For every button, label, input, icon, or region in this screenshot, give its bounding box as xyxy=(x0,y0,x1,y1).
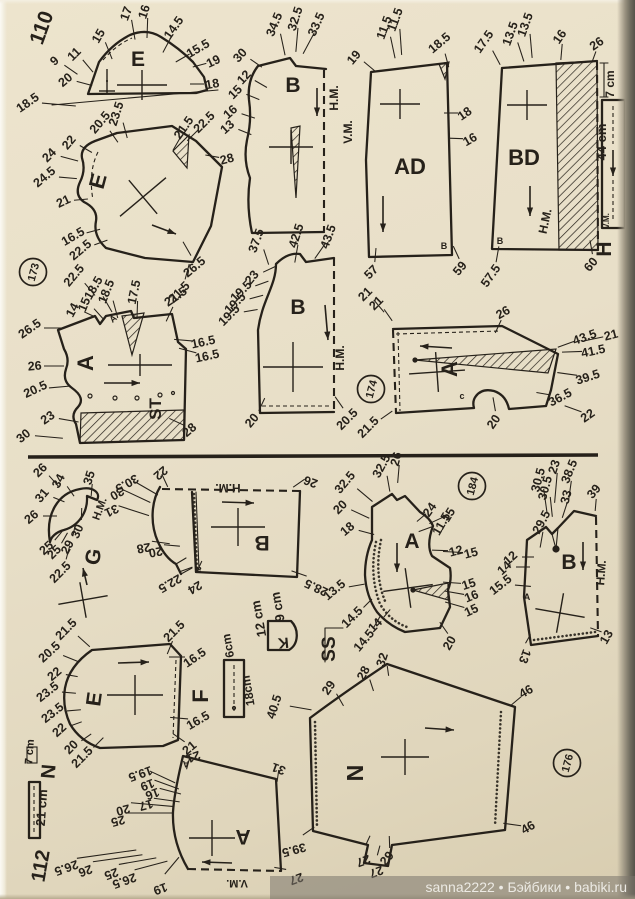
measurement-label: 30 xyxy=(68,522,86,540)
pattern-sheet-page: 110112EEASTBBAADBDHGBKFSSENABNAH.M.V.M.H… xyxy=(0,0,635,899)
measurement-label: 18 xyxy=(204,76,220,92)
measurement-label: 12 xyxy=(447,543,464,560)
measurement-label: 44 cm xyxy=(594,124,609,161)
measurement-label: 31 xyxy=(32,486,52,506)
measurement-label: A xyxy=(524,592,531,602)
measurement-label: 12 cm xyxy=(248,599,269,638)
measurement-label: 23 xyxy=(38,408,57,427)
measurement-label: V.M. xyxy=(226,877,248,889)
measurement-label: 22 xyxy=(578,406,597,425)
piece-letter-AD: AD xyxy=(394,154,426,179)
section-divider xyxy=(28,455,598,457)
arrow-head xyxy=(245,500,254,506)
measurement-label: 32.5 xyxy=(332,469,358,497)
leader-line xyxy=(515,585,531,586)
measurement-label: H.M. xyxy=(333,345,347,370)
measurement-label: 22.5 xyxy=(156,571,184,595)
piece-letter-B2: B xyxy=(290,296,305,319)
leader-line xyxy=(119,858,156,865)
measurement-label: 16 xyxy=(135,3,153,21)
stipple-B4 xyxy=(534,632,595,640)
piece-letter-K: K xyxy=(277,634,289,652)
leader-line xyxy=(351,510,369,518)
leader-line xyxy=(292,571,307,576)
tabs-B3 xyxy=(176,558,192,574)
leader-line xyxy=(87,229,101,233)
piece-letter-E3: E xyxy=(82,691,107,708)
measurement-label: 24 xyxy=(39,145,59,165)
sheet-number-110: 110 xyxy=(25,8,58,48)
leader-line xyxy=(493,397,495,411)
measurement-label: V.M. xyxy=(341,120,355,144)
piece-letter-A3: A xyxy=(235,825,250,848)
measurement-label: 43.5 xyxy=(318,223,339,251)
leader-line xyxy=(255,81,267,88)
leader-line xyxy=(335,397,343,408)
leader-line xyxy=(562,351,582,352)
scan-edge-left xyxy=(0,0,7,899)
piece-letter-E1: E xyxy=(131,48,145,71)
measurement-label: 11.5 xyxy=(385,6,406,33)
measurement-label: 28 xyxy=(218,151,235,168)
measurement-label: 16 xyxy=(220,102,240,122)
measurement-label: 24.5 xyxy=(31,164,59,190)
piece-N-outline xyxy=(310,664,515,866)
leader-line xyxy=(183,242,191,256)
leader-line xyxy=(132,20,135,40)
measurement-label: H.M. xyxy=(215,481,240,495)
grainline-cross xyxy=(99,90,115,92)
leader-line xyxy=(562,503,567,518)
pattern-number-text: 176 xyxy=(560,753,576,774)
measurement-label: 26.5 xyxy=(53,857,81,878)
leader-line xyxy=(59,419,79,422)
measurement-label: 6cm xyxy=(219,633,237,659)
measurement-label: 57 xyxy=(361,262,381,282)
piece-E2-outline xyxy=(78,126,222,262)
marking-dot xyxy=(158,393,162,397)
measurement-label: 16 xyxy=(550,27,569,46)
measurement-label: 13 xyxy=(597,627,616,646)
leader-line xyxy=(377,846,380,856)
measurement-label: 40.5 xyxy=(264,693,285,721)
leader-line xyxy=(445,602,464,608)
piece-letter-G: G xyxy=(81,547,106,567)
measurement-label: 20 xyxy=(242,411,262,431)
pattern-number-text: 173 xyxy=(26,262,42,283)
leader-line xyxy=(152,541,170,544)
dart-A1 xyxy=(122,313,144,355)
measurement-label: 16 xyxy=(460,130,479,149)
measurement-label: 26 xyxy=(587,34,606,53)
measurement-label: 18 xyxy=(338,519,358,539)
measurement-label: 21 cm xyxy=(33,789,51,827)
leader-line xyxy=(366,836,370,845)
measurement-label: 22 xyxy=(151,463,171,483)
measurement-label: 31 xyxy=(270,760,288,778)
leader-line xyxy=(49,386,71,388)
leader-line xyxy=(432,550,448,551)
leader-line xyxy=(493,51,501,65)
measurement-label: 22.5 xyxy=(47,559,74,586)
measurement-label: 17.5 xyxy=(125,279,144,306)
leader-line xyxy=(93,855,143,862)
marking-dot xyxy=(172,392,175,395)
measurement-label: 32 xyxy=(373,651,391,669)
piece-E3-outline xyxy=(64,644,181,748)
measurement-label: 22 xyxy=(49,720,69,740)
piece-letter-A2: A xyxy=(437,361,462,377)
seam-dash-E3 xyxy=(173,660,176,738)
dart-point-dot xyxy=(553,546,559,552)
measurement-label: 14.5 xyxy=(161,14,186,42)
leader-line xyxy=(137,301,138,319)
arrow-head xyxy=(394,564,400,572)
facing-band-BD xyxy=(556,61,598,250)
measurement-label: 15 xyxy=(462,601,481,620)
leader-line xyxy=(417,514,426,522)
measurement-label: 39.5 xyxy=(280,840,307,860)
grainline-cross xyxy=(507,90,547,120)
arrow-head xyxy=(420,343,429,349)
measurement-label: 16.5 xyxy=(184,708,212,732)
marking-dot xyxy=(88,394,92,398)
piece-A3-outline xyxy=(173,756,281,871)
measurement-label: c xyxy=(459,391,464,401)
measurement-label: 20 xyxy=(148,544,164,560)
leader-line xyxy=(381,411,392,419)
leader-line xyxy=(67,710,81,711)
measurement-label: 22.5 xyxy=(61,262,87,290)
leader-line xyxy=(387,666,388,676)
stipple-N-left xyxy=(315,722,317,828)
leader-line xyxy=(70,722,81,726)
leader-line xyxy=(165,857,179,874)
piece-letter-N-margin: N xyxy=(37,763,60,779)
stipple-N-right xyxy=(495,712,501,826)
grainline-cross xyxy=(380,89,420,119)
leader-line xyxy=(595,499,596,511)
measurement-label: 15 xyxy=(462,545,479,562)
arrow-head xyxy=(580,562,586,570)
piece-letter-A1: A xyxy=(73,355,98,371)
measurement-label: 13 xyxy=(217,117,237,137)
pattern-diagram: 110112EEASTBBAADBDHGBKFSSENABNAH.M.V.M.H… xyxy=(0,0,635,899)
piece-letter-N: N xyxy=(342,765,368,782)
measurement-label: 24 xyxy=(185,578,204,597)
measurement-label: 59 xyxy=(450,259,470,279)
seam-dash-E1 xyxy=(103,38,132,60)
leader-line xyxy=(83,60,93,72)
measurement-label: 19 xyxy=(204,52,223,71)
leader-line xyxy=(565,406,582,412)
grainline-cross xyxy=(263,342,323,392)
leader-line xyxy=(35,436,63,438)
arrow-head xyxy=(140,659,149,665)
measurement-label: B xyxy=(497,236,504,246)
piece-letter-B4: B xyxy=(561,551,576,574)
measurement-label: 13 xyxy=(516,647,534,665)
measurement-label: 20 xyxy=(440,633,459,652)
leader-line xyxy=(250,295,264,299)
measurement-label: 20 xyxy=(330,497,350,517)
measurement-label: 33.5 xyxy=(305,10,328,38)
measurement-label: 18 xyxy=(455,104,474,123)
leader-line xyxy=(59,177,77,179)
leader-line xyxy=(400,29,402,55)
measurement-label: H.M. xyxy=(536,207,555,235)
leader-line xyxy=(242,114,255,118)
leader-line xyxy=(357,489,372,502)
measurement-label: 26 xyxy=(493,303,512,322)
leader-line xyxy=(264,249,269,264)
marking-dot xyxy=(113,396,117,400)
measurement-label: V.M. xyxy=(602,213,611,229)
measurement-label: 26.5 xyxy=(181,254,209,280)
measurement-label: 19 xyxy=(344,48,364,68)
grainline-cross xyxy=(107,675,163,715)
leader-line xyxy=(119,506,149,516)
measurement-label: 25 xyxy=(109,812,126,829)
measurement-label: 46 xyxy=(518,818,537,837)
arrow-head xyxy=(202,859,211,865)
fold-line-A3 xyxy=(188,869,281,871)
measurement-label: 34 xyxy=(49,472,68,491)
leader-line xyxy=(536,392,550,394)
measurement-label: 22.5 xyxy=(191,109,218,136)
leader-line xyxy=(61,156,78,161)
dart-Amid xyxy=(413,583,448,600)
measurement-label: 21 xyxy=(54,192,73,211)
measurement-label: 7 cm xyxy=(23,739,37,765)
watermark: sanna2222 • Бэйбики • babiki.ru xyxy=(270,876,635,899)
measurement-label: 14.5 xyxy=(339,604,366,631)
leader-line xyxy=(518,42,524,61)
measurement-label: A xyxy=(182,759,189,769)
measurement-label: 9 cm xyxy=(268,591,288,623)
measurement-label: 26 xyxy=(22,507,42,527)
leader-line xyxy=(250,59,261,67)
leader-line xyxy=(558,341,575,347)
leader-line xyxy=(78,636,90,647)
measurement-label: 35 xyxy=(80,469,98,487)
edge-B3-curve xyxy=(153,487,181,574)
leader-line xyxy=(147,18,148,38)
leader-line xyxy=(93,738,103,748)
measurement-label: 30 xyxy=(230,45,250,65)
leader-line xyxy=(555,473,558,503)
arrow-head xyxy=(380,224,386,232)
scan-edge-right xyxy=(617,0,635,899)
sheet-number-112: 112 xyxy=(27,848,54,884)
measurement-label: 18.5 xyxy=(14,90,42,115)
leader-line xyxy=(384,309,392,320)
grainline-cross xyxy=(106,161,180,233)
grainline-cross xyxy=(189,820,235,856)
leader-line xyxy=(364,62,375,71)
leader-line xyxy=(164,545,180,546)
measurement-label: 32.5 xyxy=(285,5,306,33)
leader-line xyxy=(263,266,276,272)
measurement-label: 30 xyxy=(14,426,34,446)
arrow-head xyxy=(167,228,176,234)
leader-line xyxy=(244,309,258,311)
leader-line xyxy=(290,706,312,710)
piece-letter-B1: B xyxy=(285,74,300,97)
leader-line xyxy=(74,199,88,200)
leader-line xyxy=(303,33,314,54)
piece-letter-H: H xyxy=(593,241,616,256)
measurement-label: 38.5 xyxy=(558,458,580,486)
measurement-label: 16.5 xyxy=(181,645,209,670)
leader-line xyxy=(530,34,532,58)
leader-line xyxy=(387,476,390,492)
piece-letter-E2: E xyxy=(84,171,112,192)
grainline-cross xyxy=(381,739,429,775)
leader-line xyxy=(105,42,112,59)
grainline-cross xyxy=(108,354,172,376)
measurement-label: 26 xyxy=(302,473,320,491)
measurement-label: 7 cm xyxy=(603,70,617,97)
leader-line xyxy=(123,123,127,138)
piece-letter-ST: ST xyxy=(146,398,165,420)
measurement-label: 15.5 xyxy=(487,572,515,598)
measurement-label: 20 xyxy=(484,412,503,431)
grainline-cross xyxy=(269,130,313,164)
measurement-label: 21.5 xyxy=(53,616,80,643)
arrow-head xyxy=(610,168,616,176)
measurement-label: 29 xyxy=(319,678,338,697)
piece-letter-BD: BD xyxy=(508,145,540,170)
measurement-label: H.M. xyxy=(593,560,609,586)
measurement-label: B xyxy=(441,241,448,251)
leader-line xyxy=(77,81,92,85)
measurement-label: 22 xyxy=(45,664,65,684)
measurement-label: 21.5 xyxy=(161,618,188,645)
leader-line xyxy=(160,788,181,794)
measurement-label: 57.5 xyxy=(478,262,503,290)
arrow-head xyxy=(527,208,533,216)
leader-line xyxy=(453,246,459,259)
leader-line xyxy=(370,680,374,691)
measurement-label: 12 xyxy=(234,67,254,87)
leader-line xyxy=(280,34,285,56)
measurement-label: 22 xyxy=(59,133,79,153)
measurement-label: 9 xyxy=(47,53,61,68)
leader-line xyxy=(63,655,78,661)
scan-edge-top xyxy=(0,0,635,4)
measurement-label: 39.5 xyxy=(574,367,602,388)
measurement-label: 20.5 xyxy=(21,378,49,401)
piece-B2-outline xyxy=(258,254,334,413)
dart-B1 xyxy=(291,126,300,198)
piece-letter-F: F xyxy=(188,689,213,702)
measurement-label: 42.5 xyxy=(286,222,307,250)
measurement-label: 17 xyxy=(117,5,135,23)
measurement-label: 21.5 xyxy=(355,414,382,441)
measurement-label: 26 xyxy=(27,358,42,373)
leader-line xyxy=(390,37,395,59)
leader-line xyxy=(375,248,376,262)
dart-point-dot xyxy=(411,588,415,592)
leader-line xyxy=(510,697,521,706)
measurement-label: 26.5 xyxy=(16,316,44,341)
pattern-number-text: 174 xyxy=(364,378,381,400)
measurement-label: 33 xyxy=(558,488,575,505)
grainline-cross xyxy=(532,589,588,637)
measurement-label: 26 xyxy=(30,460,50,480)
measurement-label: 18cm xyxy=(239,674,258,707)
leader-line xyxy=(135,861,168,870)
hem-band-A1 xyxy=(80,410,184,443)
measurement-label: 20 xyxy=(56,70,76,90)
measurement-label: 34.5 xyxy=(263,11,285,39)
fold-line-A2 xyxy=(393,330,396,413)
marking-dot xyxy=(135,396,139,400)
measurement-label: 39 xyxy=(584,482,604,502)
arrow-head xyxy=(314,108,320,116)
leader-line xyxy=(135,482,158,495)
leader-line xyxy=(349,584,365,587)
measurement-label: 13.5 xyxy=(515,11,536,39)
piece-letter-A-mid: A xyxy=(404,530,419,553)
watermark-text: sanna2222 • Бэйбики • babiki.ru xyxy=(425,879,627,895)
measurement-label: 11 xyxy=(65,45,84,64)
grainline-cross xyxy=(55,578,110,622)
piece-letter-SS: SS xyxy=(319,636,340,661)
arrow-head xyxy=(132,380,140,386)
measurement-label: H.M. xyxy=(327,85,341,110)
piece-letter-B3: B xyxy=(254,531,269,554)
grainline-cross xyxy=(106,69,108,93)
dart-point-dot xyxy=(413,358,417,362)
measurement-label: 18.5 xyxy=(426,30,454,56)
baseline-E1 xyxy=(52,90,218,105)
measurement-label: 20.5 xyxy=(36,639,63,666)
pattern-number-text: 184 xyxy=(465,475,482,497)
